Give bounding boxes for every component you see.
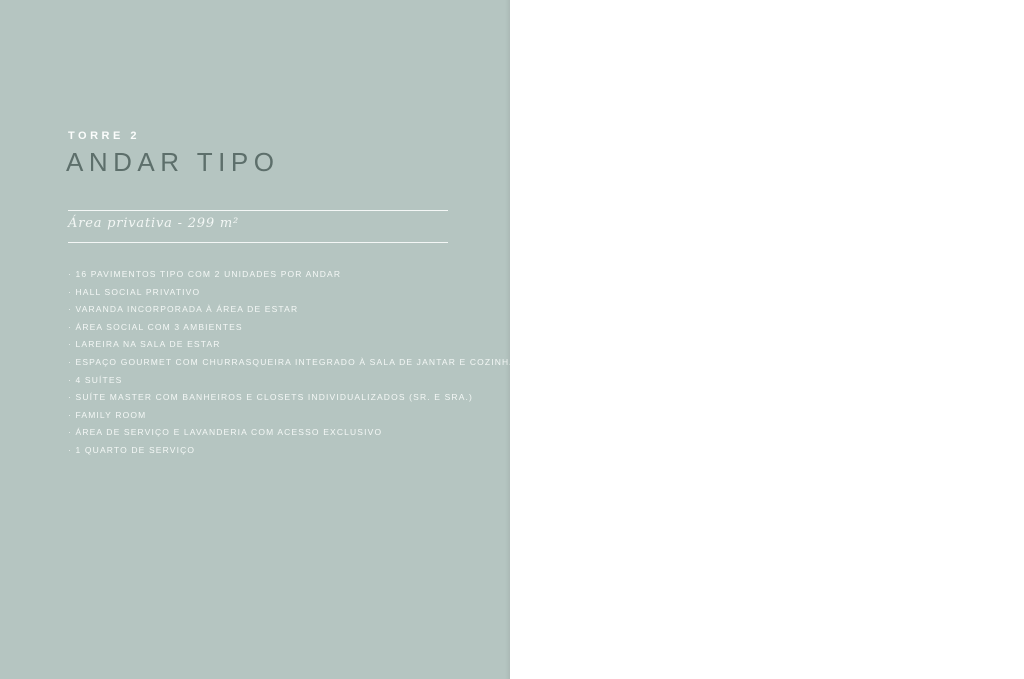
feature-item: HALL SOCIAL PRIVATIVO xyxy=(68,287,478,297)
left-info-panel: TORRE 2 ANDAR TIPO Área privativa - 299 … xyxy=(0,0,510,679)
feature-item: 16 PAVIMENTOS TIPO COM 2 UNIDADES POR AN… xyxy=(68,269,478,279)
tower-eyebrow: TORRE 2 xyxy=(68,130,140,142)
right-plan-panel: N xyxy=(510,0,1024,679)
brochure-page: TORRE 2 ANDAR TIPO Área privativa - 299 … xyxy=(0,0,1024,679)
page-title: ANDAR TIPO xyxy=(66,147,279,178)
private-area-subtitle: Área privativa - 299 m² xyxy=(68,216,239,231)
feature-item: LAREIRA NA SALA DE ESTAR xyxy=(68,339,478,349)
feature-item: VARANDA INCORPORADA À ÁREA DE ESTAR xyxy=(68,304,478,314)
feature-item: FAMILY ROOM xyxy=(68,410,478,420)
feature-item: 1 QUARTO DE SERVIÇO xyxy=(68,445,478,455)
feature-item: ÁREA SOCIAL COM 3 AMBIENTES xyxy=(68,322,478,332)
feature-item: ÁREA DE SERVIÇO E LAVANDERIA COM ACESSO … xyxy=(68,427,478,437)
divider-line xyxy=(68,210,448,211)
feature-item: SUÍTE MASTER COM BANHEIROS E CLOSETS IND… xyxy=(68,392,478,402)
feature-item: ESPAÇO GOURMET COM CHURRASQUEIRA INTEGRA… xyxy=(68,357,478,367)
divider-line xyxy=(68,242,448,243)
features-list: 16 PAVIMENTOS TIPO COM 2 UNIDADES POR AN… xyxy=(68,269,478,463)
feature-item: 4 SUÍTES xyxy=(68,375,478,385)
